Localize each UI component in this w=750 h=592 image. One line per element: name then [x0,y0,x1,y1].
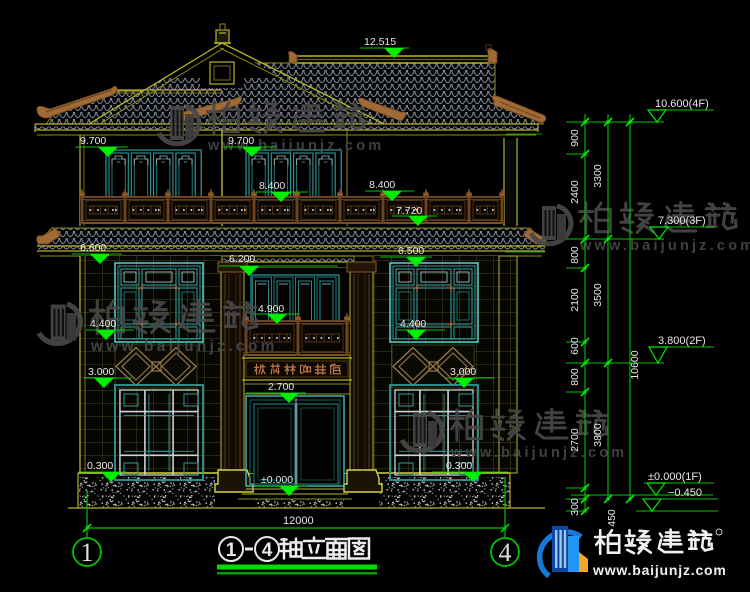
svg-text:6.200: 6.200 [229,253,255,265]
svg-text:3500: 3500 [592,283,604,307]
svg-text:800: 800 [569,368,581,386]
svg-text:3300: 3300 [592,164,604,188]
svg-text:www.baijunjz.com: www.baijunjz.com [579,238,750,254]
svg-text:www.baijunjz.com: www.baijunjz.com [592,562,727,578]
svg-text:9.700: 9.700 [80,135,106,147]
svg-text:8.400: 8.400 [259,180,285,192]
svg-text:3.800(2F): 3.800(2F) [658,335,706,347]
svg-text:4.900: 4.900 [258,303,284,315]
svg-text:0.300: 0.300 [87,460,113,472]
svg-text:4: 4 [499,538,512,567]
svg-text:2.700: 2.700 [268,381,294,393]
svg-text:9.700: 9.700 [228,135,254,147]
svg-text:4.400: 4.400 [90,318,116,330]
svg-text:600: 600 [569,337,581,355]
svg-text:7.720: 7.720 [396,205,422,217]
svg-text:±0.000(1F): ±0.000(1F) [648,471,702,483]
svg-text:10600: 10600 [629,350,641,379]
svg-text:7.300(3F): 7.300(3F) [658,215,706,227]
svg-text:1: 1 [226,540,237,561]
svg-text:1: 1 [81,538,94,567]
svg-text:4: 4 [262,540,273,561]
svg-text:3800: 3800 [592,423,604,447]
svg-text:300: 300 [569,498,581,516]
svg-text:2400: 2400 [569,180,581,204]
svg-text:3.000: 3.000 [450,366,476,378]
svg-text:8.400: 8.400 [369,179,395,191]
svg-text:±0.000: ±0.000 [261,474,293,486]
svg-text:www.baijunjz.com: www.baijunjz.com [90,338,278,355]
svg-text:10.600(4F): 10.600(4F) [655,98,709,110]
svg-text:6.600: 6.600 [80,242,106,254]
svg-text:4.400: 4.400 [400,318,426,330]
svg-text:6.500: 6.500 [398,245,424,257]
svg-text:3.000: 3.000 [88,366,114,378]
svg-text:2100: 2100 [569,288,581,312]
svg-text:12000: 12000 [283,515,314,527]
svg-text:0.300: 0.300 [446,460,472,472]
svg-text:800: 800 [569,246,581,264]
svg-text:900: 900 [569,129,581,147]
svg-text:12.515: 12.515 [364,36,396,48]
svg-text:2700: 2700 [569,428,581,452]
svg-text:−0.450: −0.450 [668,487,702,499]
svg-text:450: 450 [606,509,618,527]
